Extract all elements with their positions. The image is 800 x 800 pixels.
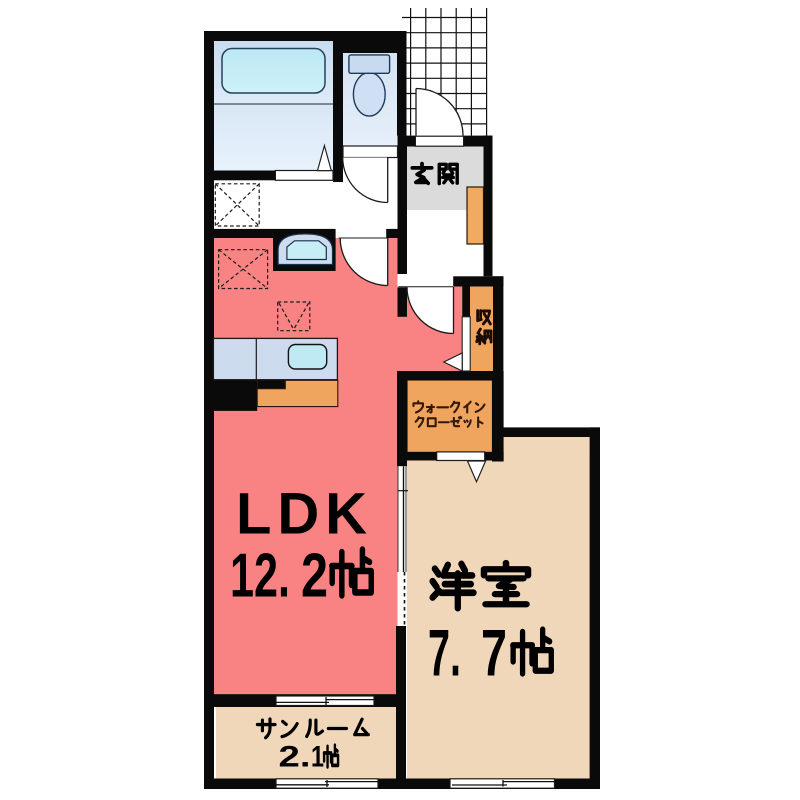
svg-text:7: 7 [481,616,507,690]
svg-text:LDK: LDK [236,482,367,547]
svg-text:2.: 2. [279,741,311,774]
svg-text:2: 2 [301,542,328,611]
svg-text:7.: 7. [428,616,461,690]
svg-text:12.: 12. [230,542,290,611]
svg-text:1: 1 [311,741,324,774]
